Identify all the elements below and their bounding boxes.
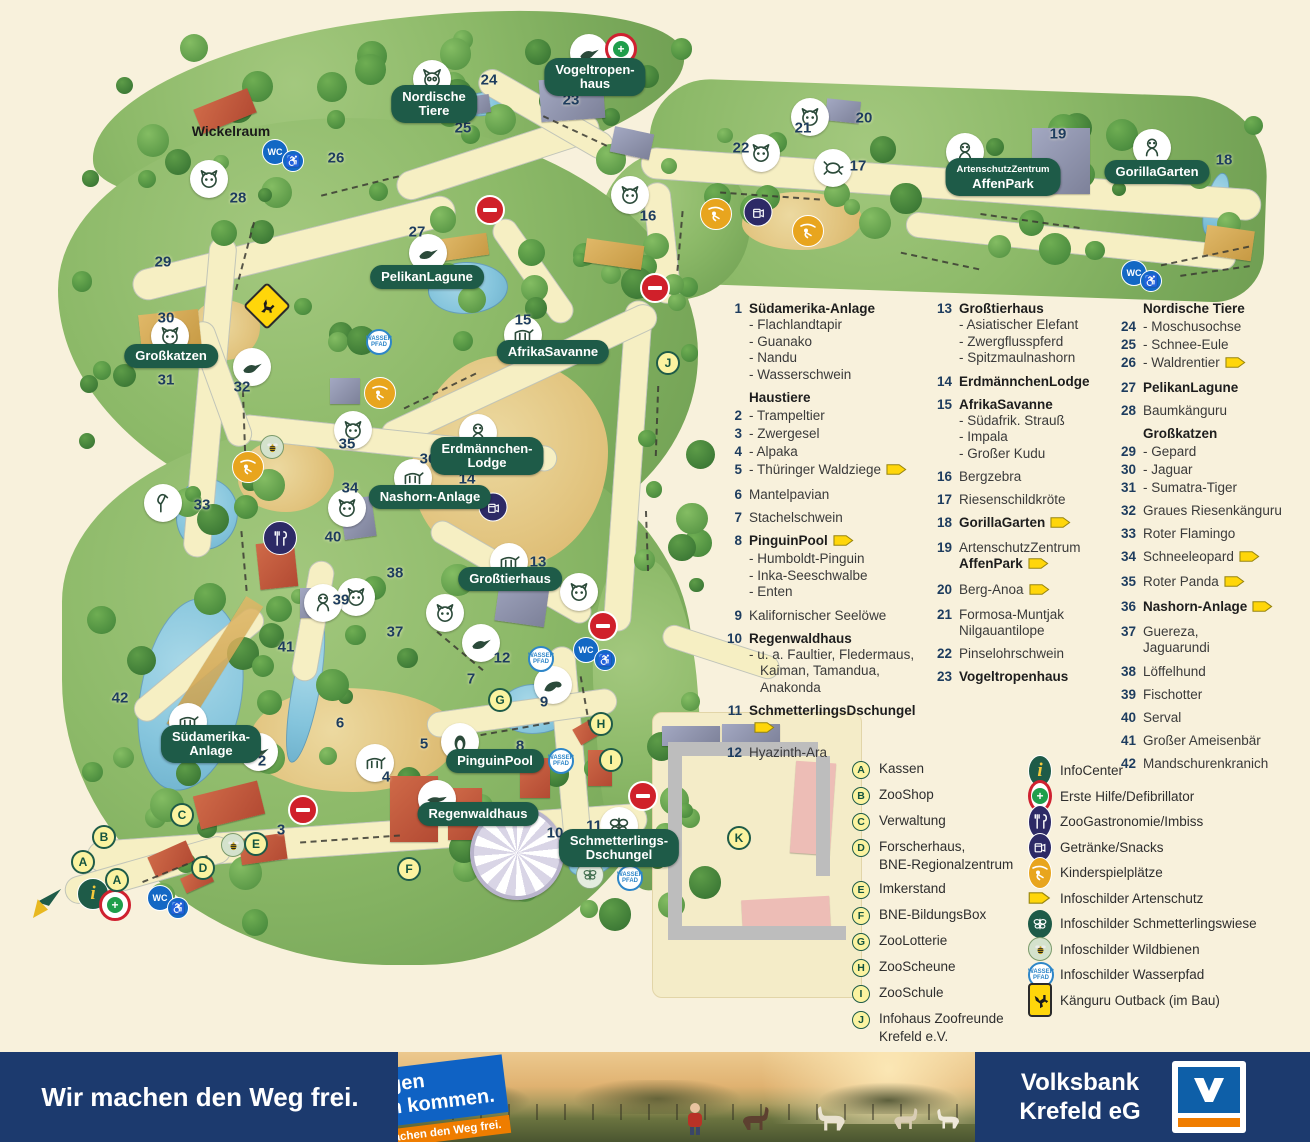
map-number-19: 19	[1050, 126, 1067, 143]
wheel-icon: ♿	[1140, 270, 1162, 292]
tree	[689, 578, 703, 592]
bank-name: Volksbank Krefeld eG	[1005, 1068, 1155, 1126]
tree	[82, 170, 98, 186]
letter-marker-F: F	[397, 857, 421, 881]
tree	[242, 909, 269, 936]
wheel-icon: ♿	[282, 150, 304, 172]
legend-entry-36: 36Nashorn-Anlage	[1112, 598, 1310, 617]
icon-legend-row: WASSERPFAD Infoschilder Wasserpfad	[1028, 964, 1257, 985]
tree	[717, 128, 732, 143]
tree	[180, 34, 208, 62]
legend-label: - Gepard	[1143, 444, 1196, 459]
map-number-32: 32	[234, 379, 251, 396]
tree	[317, 72, 347, 102]
arrow-legend-icon	[1028, 891, 1051, 905]
map-number-3: 3	[277, 822, 285, 839]
area-label-erdmaennchen-lodge: Erdmännchen-Lodge	[430, 437, 543, 475]
legend-label: Kalifornischer Seelöwe	[749, 608, 886, 623]
map-number-17: 17	[850, 158, 867, 175]
tree	[599, 898, 632, 931]
map-number-40: 40	[325, 529, 342, 546]
area-label-grosstierhaus: Großtierhaus	[458, 567, 562, 591]
letter-legend-row-H: H ZooScheune	[852, 958, 1013, 977]
letter-legend-row-G: G ZooLotterie	[852, 932, 1013, 951]
zoo-map-page: WC♿WC♿WC♿WC♿i++WASSERPFADWASSERPFADWASSE…	[0, 0, 1310, 1142]
legend-number: 1	[718, 300, 749, 383]
legend-number: 5	[718, 461, 749, 480]
map-number-33: 33	[194, 497, 211, 514]
legend-entry-17: 17Riesenschildkröte	[928, 491, 1143, 508]
legend-label: Roter Flamingo	[1143, 526, 1235, 541]
legend-sub-item: - Flachlandtapir	[749, 317, 875, 334]
tree	[316, 669, 348, 701]
map-number-27: 27	[409, 224, 426, 241]
letter-marker-H: H	[589, 712, 613, 736]
legend-entry-22: 22Pinselohrschwein	[928, 645, 1143, 662]
legend-entry-12: 12Hyazinth-Ara	[718, 744, 933, 761]
legend-label: Guereza,	[1143, 624, 1199, 639]
tree	[580, 900, 598, 918]
map-number-20: 20	[856, 110, 873, 127]
icon-legend-label: InfoCenter	[1060, 763, 1123, 778]
legend-number: 14	[928, 373, 959, 390]
legend-entry-14: 14ErdmännchenLodge	[928, 373, 1143, 390]
building	[330, 378, 360, 404]
map-number-22: 22	[733, 140, 750, 157]
map-number-9: 9	[540, 694, 548, 711]
map-number-26: 26	[328, 150, 345, 167]
wheel-icon: ♿	[167, 897, 189, 919]
letter-marker-G: G	[488, 688, 512, 712]
letter-legend-label: ZooLotterie	[879, 932, 947, 950]
map-number-6: 6	[336, 715, 344, 732]
tree	[458, 286, 486, 314]
legend-number: 16	[928, 468, 959, 485]
tree	[988, 235, 1011, 258]
tree	[986, 138, 1004, 156]
legend-number	[1112, 300, 1143, 317]
letter-legend-row-B: B ZooShop	[852, 786, 1013, 805]
legend-number: 41	[1112, 732, 1143, 749]
tree	[676, 503, 708, 535]
alpaca-silhouette	[933, 1106, 964, 1133]
legend-number: 35	[1112, 573, 1143, 592]
legend-entry-39: 39Fischotter	[1112, 686, 1310, 703]
icon-legend-row: ZooGastronomie/Imbiss	[1028, 811, 1257, 832]
map-number-34: 34	[342, 480, 359, 497]
banner: Wir machen den Weg frei. Morgenkann komm…	[0, 1052, 1310, 1142]
tortoise-icon	[814, 149, 852, 187]
letter-badge-J: J	[852, 1011, 870, 1029]
tree	[79, 433, 95, 449]
legend-entry-18: 18GorillaGarten	[928, 514, 1143, 533]
legend-sub-item: - Nandu	[749, 350, 875, 367]
noentry-icon	[588, 611, 618, 641]
tree	[127, 646, 156, 675]
legend-label: - Thüringer Waldziege	[749, 462, 881, 477]
icon-legend-label: Infoschilder Wasserpfad	[1060, 967, 1204, 982]
noentry-icon	[640, 273, 670, 303]
letter-marker-K: K	[727, 826, 751, 850]
icon-legend: i InfoCenter+ Erste Hilfe/Defibrillator …	[1028, 760, 1257, 1015]
letter-marker-C: C	[170, 803, 194, 827]
letter-marker-B: B	[92, 825, 116, 849]
legend-sub-item: - u. a. Faultier, Fledermaus,	[749, 647, 914, 664]
legend-number: 30	[1112, 461, 1143, 478]
tree	[870, 136, 896, 162]
tree	[686, 440, 715, 469]
letter-legend-row-C: C Verwaltung	[852, 812, 1013, 831]
legend-label: - Schnee-Eule	[1143, 337, 1229, 352]
drink-icon	[744, 198, 773, 227]
tree	[890, 183, 922, 215]
legend-sub-item: - Inka-Seeschwalbe	[749, 568, 868, 585]
legend-entry-35: 35Roter Panda	[1112, 573, 1310, 592]
legend-number: 25	[1112, 336, 1143, 353]
tree	[661, 158, 677, 174]
legend-label: Roter Panda	[1143, 574, 1219, 589]
tree	[689, 866, 722, 899]
tree	[646, 481, 663, 498]
bank-slogan: Wir machen den Weg frei.	[40, 1082, 360, 1113]
legend-label: ArtenschutzZentrum	[959, 540, 1081, 555]
legend-entry-16: 16Bergzebra	[928, 468, 1143, 485]
wasser-icon: WASSERPFAD	[366, 329, 392, 355]
legend-entry-11: 11SchmetterlingsDschungel	[718, 702, 933, 738]
legend-label: Serval	[1143, 710, 1181, 725]
letter-legend-label: ZooShop	[879, 786, 934, 804]
map-number-15: 15	[515, 312, 532, 329]
play-icon	[232, 451, 264, 483]
legend-entry-28: 28Baumkänguru	[1112, 402, 1310, 419]
legend-number: 20	[928, 581, 959, 600]
legend-sub-item: - Enten	[749, 584, 868, 601]
legend-label: Haustiere	[749, 390, 811, 405]
legend-label: Großkatzen	[1143, 426, 1217, 441]
alpaca-silhouette	[890, 1106, 922, 1135]
legend-entry-31: 31- Sumatra-Tiger	[1112, 479, 1310, 496]
tree	[681, 692, 700, 711]
map-number-4: 4	[382, 769, 390, 786]
hippo-icon	[560, 573, 598, 611]
legend-label: Nashorn-Anlage	[1143, 599, 1247, 614]
legend-entry: Nordische Tiere	[1112, 300, 1310, 317]
goat-icon	[426, 594, 464, 632]
tree	[638, 430, 656, 448]
legend-entry-37: 37Guereza,Jaguarundi	[1112, 623, 1310, 657]
letter-marker-A: A	[105, 868, 129, 892]
map-number-28: 28	[230, 190, 247, 207]
legend-label: AfrikaSavanne	[959, 397, 1053, 412]
icon-legend-label: Infoschilder Schmetterlingswiese	[1060, 916, 1257, 931]
legend-label: - Jaguar	[1143, 462, 1193, 477]
tree	[397, 648, 418, 669]
artenschutz-arrow-icon	[886, 463, 907, 480]
legend-entry-29: 29- Gepard	[1112, 443, 1310, 460]
map-number-30: 30	[158, 310, 175, 327]
legend-entry-1: 1Südamerika-Anlage- Flachlandtapir- Guan…	[718, 300, 933, 383]
legend-entry-38: 38Löffelhund	[1112, 663, 1310, 680]
legend-label-line2: AffenPark	[959, 556, 1081, 575]
legend-entry-5: 5- Thüringer Waldziege	[718, 461, 933, 480]
legend-number: 24	[1112, 318, 1143, 335]
icon-legend-row: Getränke/Snacks	[1028, 837, 1257, 858]
icon-legend-label: Getränke/Snacks	[1060, 840, 1164, 855]
bee-icon	[221, 833, 245, 857]
legend-number: 22	[928, 645, 959, 662]
legend-entry-3: 3- Zwergesel	[718, 425, 933, 442]
icon-legend-row: Infoschilder Schmetterlingswiese	[1028, 913, 1257, 934]
legend-number: 9	[718, 607, 749, 624]
area-label-afrikasavanne: AfrikaSavanne	[497, 340, 609, 364]
noentry-icon	[628, 781, 658, 811]
artenschutz-arrow-icon	[1252, 600, 1273, 617]
letter-legend-label: ZooScheune	[879, 958, 956, 976]
legend-number: 2	[718, 407, 749, 424]
letter-badge-I: I	[852, 985, 870, 1003]
letter-legend-label: ZooSchule	[879, 984, 944, 1002]
legend-label-line2: Jaguarundi	[1143, 640, 1210, 657]
icon-legend-label: Infoschilder Artenschutz	[1060, 891, 1203, 906]
wasser-icon: WASSERPFAD	[617, 865, 643, 891]
artenschutz-arrow-icon	[1224, 575, 1245, 592]
legend-number: 23	[928, 668, 959, 685]
artenschutz-arrow-icon	[1239, 550, 1260, 567]
legend-entry-20: 20Berg-Anoa	[928, 581, 1143, 600]
legend-entry-41: 41Großer Ameisenbär	[1112, 732, 1310, 749]
legend-number: 37	[1112, 623, 1143, 657]
legend-label: Hyazinth-Ara	[749, 745, 827, 760]
legend-label: Mantelpavian	[749, 487, 829, 502]
letter-badge-B: B	[852, 787, 870, 805]
tree	[668, 534, 695, 561]
legend-label: Löffelhund	[1143, 664, 1206, 679]
legend-label: - Sumatra-Tiger	[1143, 480, 1237, 495]
legend-number: 6	[718, 486, 749, 503]
legend-entry-24: 24- Moschusochse	[1112, 318, 1310, 335]
legend-number: 4	[718, 443, 749, 460]
letter-marker-J: J	[656, 351, 680, 375]
legend-label: - Waldrentier	[1143, 355, 1220, 370]
letter-badge-H: H	[852, 959, 870, 977]
legend-entry-19: 19ArtenschutzZentrumAffenPark	[928, 539, 1143, 575]
tree	[671, 38, 693, 60]
letter-legend-label: Kassen	[879, 760, 924, 778]
volksbank-logo-bar	[1178, 1118, 1240, 1127]
legend-entry-4: 4- Alpaka	[718, 443, 933, 460]
legend-entry-27: 27PelikanLagune	[1112, 379, 1310, 396]
tree	[137, 124, 169, 156]
map-number-7: 7	[467, 671, 475, 688]
legend-number	[1112, 425, 1143, 442]
letter-legend-label: Forscherhaus,BNE-Regionalzentrum	[879, 838, 1013, 873]
wheel-icon: ♿	[594, 649, 616, 671]
tree	[355, 54, 386, 85]
legend-sub-item: Anakonda	[749, 680, 914, 697]
legend-entry-8: 8PinguinPool- Humboldt-Pinguin- Inka-See…	[718, 532, 933, 601]
aid-icon: +	[99, 889, 131, 921]
legend-number: 31	[1112, 479, 1143, 496]
bee-icon	[260, 435, 284, 459]
tree	[1085, 241, 1104, 260]
legend-number: 15	[928, 396, 959, 463]
legend-label: - Trampeltier	[749, 408, 825, 423]
legend-entry-10: 10Regenwaldhaus- u. a. Faultier, Flederm…	[718, 630, 933, 697]
volksbank-v-icon	[1178, 1067, 1240, 1113]
wasser-icon: WASSERPFAD	[528, 646, 554, 672]
tree	[266, 596, 292, 622]
bflygreen-legend-icon	[1028, 910, 1052, 938]
legend-label: Fischotter	[1143, 687, 1202, 702]
legend-number: 12	[718, 744, 749, 761]
legend-number: 36	[1112, 598, 1143, 617]
tree	[116, 77, 133, 94]
building	[668, 926, 846, 940]
map-number-39: 39	[333, 592, 350, 609]
legend-label: - Alpaka	[749, 444, 798, 459]
legend-label: Pinselohrschwein	[959, 646, 1064, 661]
letter-badge-F: F	[852, 907, 870, 925]
play-legend-icon	[1028, 857, 1052, 889]
letter-marker-E: E	[244, 832, 268, 856]
wolf-icon	[190, 160, 228, 198]
legend-label: Riesenschildkröte	[959, 492, 1066, 507]
legend-label: Baumkänguru	[1143, 403, 1227, 418]
legend-sub-item: - Guanako	[749, 334, 875, 351]
legend-label: - Zwergesel	[749, 426, 820, 441]
icon-legend-label: ZooGastronomie/Imbiss	[1060, 814, 1203, 829]
tree	[601, 264, 621, 284]
artenschutz-arrow-icon	[833, 534, 854, 551]
letter-legend-label: Infohaus ZoofreundeKrefeld e.V.	[879, 1010, 1004, 1045]
legend-label: Großtierhaus	[959, 301, 1044, 316]
area-label-nashorn-anlage: Nashorn-Anlage	[369, 485, 491, 509]
map-number-31: 31	[158, 372, 175, 389]
legend-entry-9: 9Kalifornischer Seelöwe	[718, 607, 933, 624]
letter-badge-C: C	[852, 813, 870, 831]
area-label-nordische-tiere: NordischeTiere	[391, 85, 477, 123]
map-number-37: 37	[387, 624, 404, 641]
legend-column-2: 13Großtierhaus- Asiatischer Elefant- Zwe…	[928, 300, 1143, 691]
legend-entry-2: 2- Trampeltier	[718, 407, 933, 424]
letter-marker-A: A	[71, 850, 95, 874]
legend-entry-23: 23Vogeltropenhaus	[928, 668, 1143, 685]
legend-entry: Haustiere	[718, 389, 933, 406]
alpaca-silhouette	[738, 1104, 774, 1136]
legend-number: 39	[1112, 686, 1143, 703]
map-number-42: 42	[112, 690, 129, 707]
legend-entry-40: 40Serval	[1112, 709, 1310, 726]
artenschutz-arrow-icon	[1050, 516, 1071, 533]
letter-legend-row-J: J Infohaus ZoofreundeKrefeld e.V.	[852, 1010, 1013, 1045]
legend-number: 7	[718, 509, 749, 526]
letter-badge-E: E	[852, 881, 870, 899]
legend-number: 3	[718, 425, 749, 442]
icon-legend-row: Infoschilder Artenschutz	[1028, 888, 1257, 909]
map-number-35: 35	[339, 436, 356, 453]
alpaca-silhouette	[812, 1103, 850, 1137]
legend-label: Südamerika-Anlage	[749, 301, 875, 316]
letter-legend-row-F: F BNE-BildungsBox	[852, 906, 1013, 925]
tree	[345, 625, 366, 646]
legend-sub-item: - Spitzmaulnashorn	[959, 350, 1078, 367]
legend-column-1: 1Südamerika-Anlage- Flachlandtapir- Guan…	[718, 300, 933, 767]
legend-number: 40	[1112, 709, 1143, 726]
map-number-29: 29	[155, 254, 172, 271]
play-icon	[364, 377, 396, 409]
legend-label: Regenwaldhaus	[749, 631, 852, 646]
legend-number: 10	[718, 630, 749, 697]
building	[816, 756, 830, 876]
icon-legend-row: Kinderspielplätze	[1028, 862, 1257, 883]
letter-legend-row-E: E Imkerstand	[852, 880, 1013, 899]
legend-entry-32: 32Graues Riesenkänguru	[1112, 502, 1310, 519]
area-label-vogeltropenhaus: Vogeltropen-haus	[544, 58, 645, 96]
legend-number: 26	[1112, 354, 1143, 373]
legend-label: Bergzebra	[959, 469, 1021, 484]
area-label-suedamerika-anlage: Südamerika-Anlage	[161, 725, 261, 763]
legend-sub-item: - Zwergflusspferd	[959, 334, 1078, 351]
letter-badge-A: A	[852, 761, 870, 779]
artenschutz-arrow-icon	[1029, 583, 1050, 600]
area-label-pinguinpool: PinguinPool	[446, 749, 544, 773]
campaign-sticker: Morgenkann kommen. Wir machen den Weg fr…	[398, 1054, 511, 1142]
tree	[72, 271, 92, 291]
map-number-24: 24	[481, 72, 498, 89]
tree	[328, 332, 348, 352]
legend-label: Berg-Anoa	[959, 582, 1024, 597]
tree	[1244, 116, 1263, 135]
legend-entry-15: 15AfrikaSavanne- Südafrik. Strauß- Impal…	[928, 396, 1143, 463]
tree	[681, 344, 698, 361]
map-number-12: 12	[494, 650, 511, 667]
legend-label: PelikanLagune	[1143, 380, 1238, 395]
letter-legend-label: Imkerstand	[879, 880, 946, 898]
legend-number: 38	[1112, 663, 1143, 680]
area-label-artenschutzzentrum-affenpark: ArtenschutzZentrumAffenPark	[946, 158, 1061, 196]
letter-legend-row-A: A Kassen	[852, 760, 1013, 779]
legend-label: Graues Riesenkänguru	[1143, 503, 1282, 518]
map-number-18: 18	[1216, 152, 1233, 169]
legend-label: Vogeltropenhaus	[959, 669, 1068, 684]
artenschutz-arrow-icon	[754, 721, 775, 738]
map-number-16: 16	[640, 208, 657, 225]
legend-entry-21: 21Formosa-MuntjakNilgauantilope	[928, 606, 1143, 640]
icon-legend-row: Infoschilder Wildbienen	[1028, 939, 1257, 960]
icon-legend-label: Kinderspielplätze	[1060, 865, 1163, 880]
legend-label: PinguinPool	[749, 533, 828, 548]
letter-badge-G: G	[852, 933, 870, 951]
area-label-pelikanlagune: PelikanLagune	[370, 265, 484, 289]
tree	[634, 549, 656, 571]
legend-entry-13: 13Großtierhaus- Asiatischer Elefant- Zwe…	[928, 300, 1143, 367]
legend-number: 33	[1112, 525, 1143, 542]
legend-sub-item: - Großer Kudu	[959, 446, 1065, 463]
tree	[176, 761, 201, 786]
bee-legend-icon	[1028, 937, 1052, 961]
map-number-5: 5	[420, 736, 428, 753]
play-icon	[792, 215, 824, 247]
wasser-icon: WASSERPFAD	[548, 748, 574, 774]
legend-number: 17	[928, 491, 959, 508]
legend-sub-item: - Asiatischer Elefant	[959, 317, 1078, 334]
child-silhouette	[684, 1102, 706, 1136]
legend-entry-30: 30- Jaguar	[1112, 461, 1310, 478]
letter-legend-label: Verwaltung	[879, 812, 946, 830]
legend-entry-34: 34Schneeleopard	[1112, 548, 1310, 567]
letter-legend-row-D: D Forscherhaus,BNE-Regionalzentrum	[852, 838, 1013, 873]
legend-sub-item: - Humboldt-Pinguin	[749, 551, 868, 568]
